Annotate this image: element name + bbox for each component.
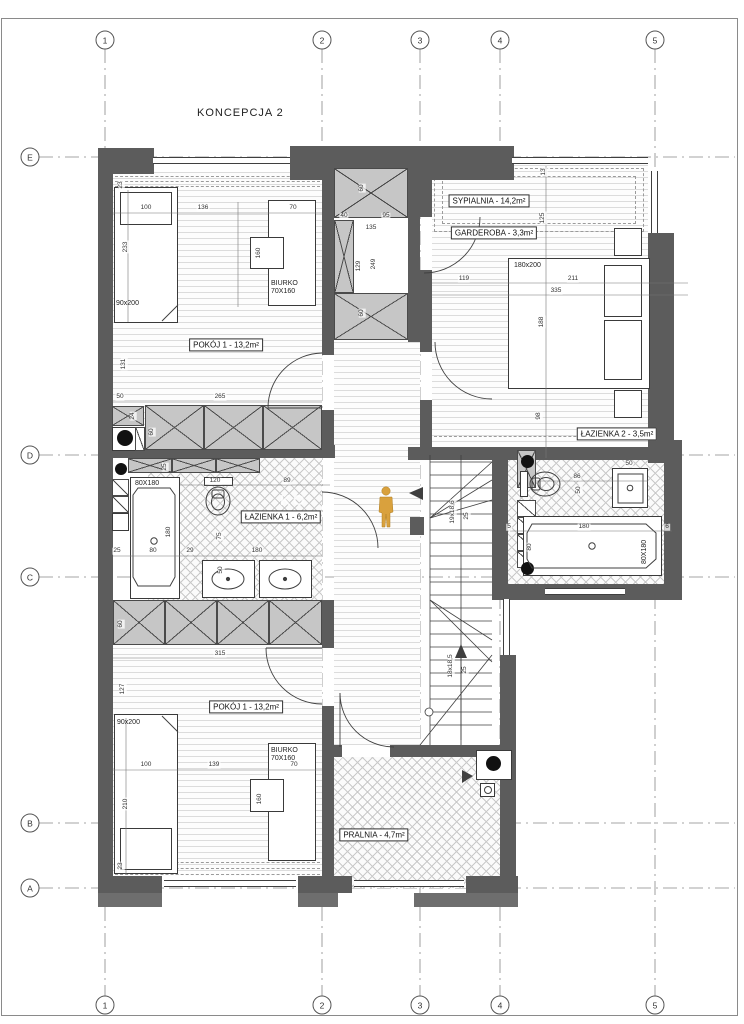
- wall: [322, 600, 334, 648]
- furniture-label: BIURKO 70X160: [271, 280, 298, 295]
- dimension-label: 180: [251, 548, 264, 555]
- dimension-label: 98: [536, 411, 543, 420]
- dimension-label: 127: [120, 683, 127, 696]
- dimension-label: 160: [257, 793, 264, 806]
- furniture-label: 80X180: [135, 480, 159, 488]
- grid-bubble-1: 1: [96, 996, 115, 1015]
- dimension-label: 125: [540, 212, 547, 225]
- dimension-label: 89: [282, 478, 291, 485]
- grid-bubble-E: E: [21, 148, 40, 167]
- dimension-label: 249: [371, 258, 378, 271]
- grid-bubble-A: A: [21, 879, 40, 898]
- dimension-label: 211: [567, 276, 579, 283]
- bed-pillow: [604, 320, 642, 380]
- dimension-label: 50: [218, 565, 225, 574]
- wall-foot: [298, 893, 338, 907]
- wardrobe-cabinet: [204, 405, 263, 450]
- dimension-label: 25: [112, 548, 121, 555]
- dimension-label: 160: [256, 247, 263, 260]
- wall: [334, 745, 342, 757]
- wall-stub: [410, 517, 424, 535]
- plan-title: KONCEPCJA 2: [197, 107, 284, 119]
- dimension-label: 70: [289, 762, 298, 769]
- wall: [664, 440, 682, 600]
- wall: [322, 410, 334, 445]
- dimension-label: 29: [185, 548, 194, 555]
- wall: [322, 342, 334, 355]
- bath1-shelf: [112, 496, 129, 513]
- grid-bubble-2: 2: [313, 996, 332, 1015]
- wall-foot: [98, 893, 162, 907]
- bath1-cabinet: [216, 458, 260, 473]
- dimension-label: 86: [572, 474, 581, 481]
- room-label: ŁAZIENKA 2 - 3,5m²: [577, 427, 657, 440]
- dimension-label: 100: [140, 762, 153, 769]
- room-label: POKÓJ 1 - 13,2m²: [209, 700, 283, 713]
- dimension-label: 13: [541, 167, 548, 176]
- wall: [420, 270, 432, 342]
- wardrobe-cabinet: [217, 600, 269, 645]
- dimension-label: 95: [381, 213, 390, 220]
- dimension-label: 180: [166, 526, 173, 539]
- wardrobe-cabinet: [269, 600, 322, 645]
- dimension-label: 75: [217, 531, 224, 540]
- furniture-label: 90x200: [117, 719, 140, 727]
- room-label: SYPIALNIA - 14,2m²: [449, 194, 530, 207]
- dimension-label: 265: [214, 394, 227, 401]
- window: [651, 171, 658, 233]
- shaft-cabinet: [334, 293, 408, 340]
- grid-bubble-1: 1: [96, 31, 115, 50]
- window: [164, 880, 296, 887]
- dimension-label: 50: [624, 461, 633, 468]
- dimension-label: 120: [209, 478, 222, 485]
- bath1-shelf: [112, 479, 129, 496]
- wall: [420, 400, 432, 447]
- window: [354, 880, 464, 887]
- toilet-cistern: [520, 471, 528, 497]
- wall: [420, 146, 432, 217]
- nightstand: [614, 390, 642, 418]
- floor-drain: [480, 783, 495, 797]
- furniture-label: 180x200: [514, 262, 541, 270]
- grid-bubble-3: 3: [411, 31, 430, 50]
- dimension-label: 24: [130, 411, 137, 420]
- furniture-label: 80X180: [641, 540, 649, 564]
- wall: [298, 876, 352, 893]
- grid-bubble-5: 5: [646, 31, 665, 50]
- grid-bubble-C: C: [21, 568, 40, 587]
- dimension-label: 335: [550, 288, 563, 295]
- bed-pillow: [120, 828, 172, 870]
- window: [512, 157, 648, 164]
- dimension-label: 129: [356, 260, 363, 273]
- floor-dash: [115, 181, 320, 182]
- grid-bubble-5: 5: [646, 996, 665, 1015]
- dimension-label: 23: [118, 180, 125, 189]
- window: [503, 599, 510, 655]
- dimension-label: 40: [339, 213, 348, 220]
- dimension-label: 188: [539, 316, 546, 329]
- wall: [322, 706, 334, 892]
- bathtub-1: [130, 477, 180, 599]
- dimension-label: 135: [365, 225, 378, 232]
- wall: [408, 447, 682, 460]
- room-label: GARDEROBA - 3,3m²: [451, 226, 537, 239]
- sink-vanity: [202, 560, 255, 598]
- dimension-label: 100: [140, 205, 153, 212]
- dimension-label: 80: [148, 548, 157, 555]
- dimension-label: 60: [359, 183, 366, 192]
- sink-vanity: [259, 560, 312, 598]
- room-label: PRALNIA - 4,7m²: [339, 828, 408, 841]
- dimension-label: 60: [149, 427, 156, 436]
- fixture-dot: [115, 463, 127, 475]
- dimension-label: 60: [359, 308, 366, 317]
- cabinet-slash: [135, 427, 145, 451]
- wall: [420, 342, 432, 352]
- floor-corridor: [334, 342, 420, 745]
- room-label: POKÓJ 1 - 13,2m²: [189, 338, 263, 351]
- dimension-label: 233: [123, 241, 130, 254]
- dimension-label: 25: [162, 462, 169, 471]
- dimension-label: 5: [506, 524, 512, 531]
- bed-pillow: [604, 265, 642, 317]
- bath1-cabinet: [172, 458, 216, 473]
- washer-drum-icon: [486, 756, 501, 771]
- shaft-cabinet: [334, 220, 354, 293]
- dimension-label: 180: [578, 524, 591, 531]
- floor-dash: [115, 874, 320, 875]
- dimension-label: 80: [527, 542, 534, 551]
- dimension-label: 25: [464, 511, 471, 520]
- dimension-label: 18x18,5: [448, 653, 455, 678]
- wardrobe-cabinet: [263, 405, 322, 450]
- wall-shaft-right: [408, 146, 420, 342]
- grid-bubble-3: 3: [411, 996, 430, 1015]
- washer-drum-icon: [117, 430, 133, 446]
- dimension-label: 136: [197, 205, 210, 212]
- nightstand: [614, 228, 642, 256]
- dimension-label: 60: [118, 619, 125, 628]
- wardrobe-cabinet: [165, 600, 217, 645]
- grid-bubble-4: 4: [491, 996, 510, 1015]
- dimension-label: 25: [462, 665, 469, 674]
- dimension-label: 50: [115, 394, 124, 401]
- bath1-shelf: [112, 513, 129, 531]
- furniture-label: BIURKO 70X160: [271, 747, 298, 762]
- room-label: ŁAZIENKA 1 - 6,2m²: [241, 510, 321, 523]
- dimension-label: 70: [288, 205, 297, 212]
- dimension-label: 23: [118, 861, 125, 870]
- grid-bubble-2: 2: [313, 31, 332, 50]
- bath2-radiator: [517, 500, 536, 517]
- dimension-label: 131: [121, 358, 128, 371]
- dimension-label: 6: [664, 524, 670, 531]
- shaft-cabinet: [334, 168, 408, 218]
- fixture-dot: [521, 455, 534, 468]
- dimension-label: 139: [208, 762, 221, 769]
- wall-left: [98, 148, 113, 893]
- dimension-label: 210: [123, 798, 130, 811]
- floor-plan-sheet: KONCEPCJA 2 KO POKÓJ 1 - 13,2m²SYPIALNIA…: [0, 0, 744, 1024]
- sink-2: [612, 468, 648, 508]
- wall: [466, 876, 518, 893]
- watermark: KO: [280, 492, 307, 509]
- dimension-label: 19x18,6: [450, 499, 457, 524]
- wall: [98, 876, 162, 893]
- furniture-label: 90x200: [116, 300, 139, 308]
- grid-bubble-B: B: [21, 814, 40, 833]
- wall-shaft-left: [322, 146, 334, 342]
- dimension-label: 119: [458, 276, 470, 283]
- fixture-dot: [521, 562, 534, 575]
- grid-bubble-4: 4: [491, 31, 510, 50]
- grid-bubble-D: D: [21, 446, 40, 465]
- dimension-label: 315: [214, 651, 227, 658]
- wall-foot: [414, 893, 518, 907]
- window: [545, 588, 625, 595]
- window: [153, 157, 290, 164]
- dimension-label: 50: [576, 485, 583, 494]
